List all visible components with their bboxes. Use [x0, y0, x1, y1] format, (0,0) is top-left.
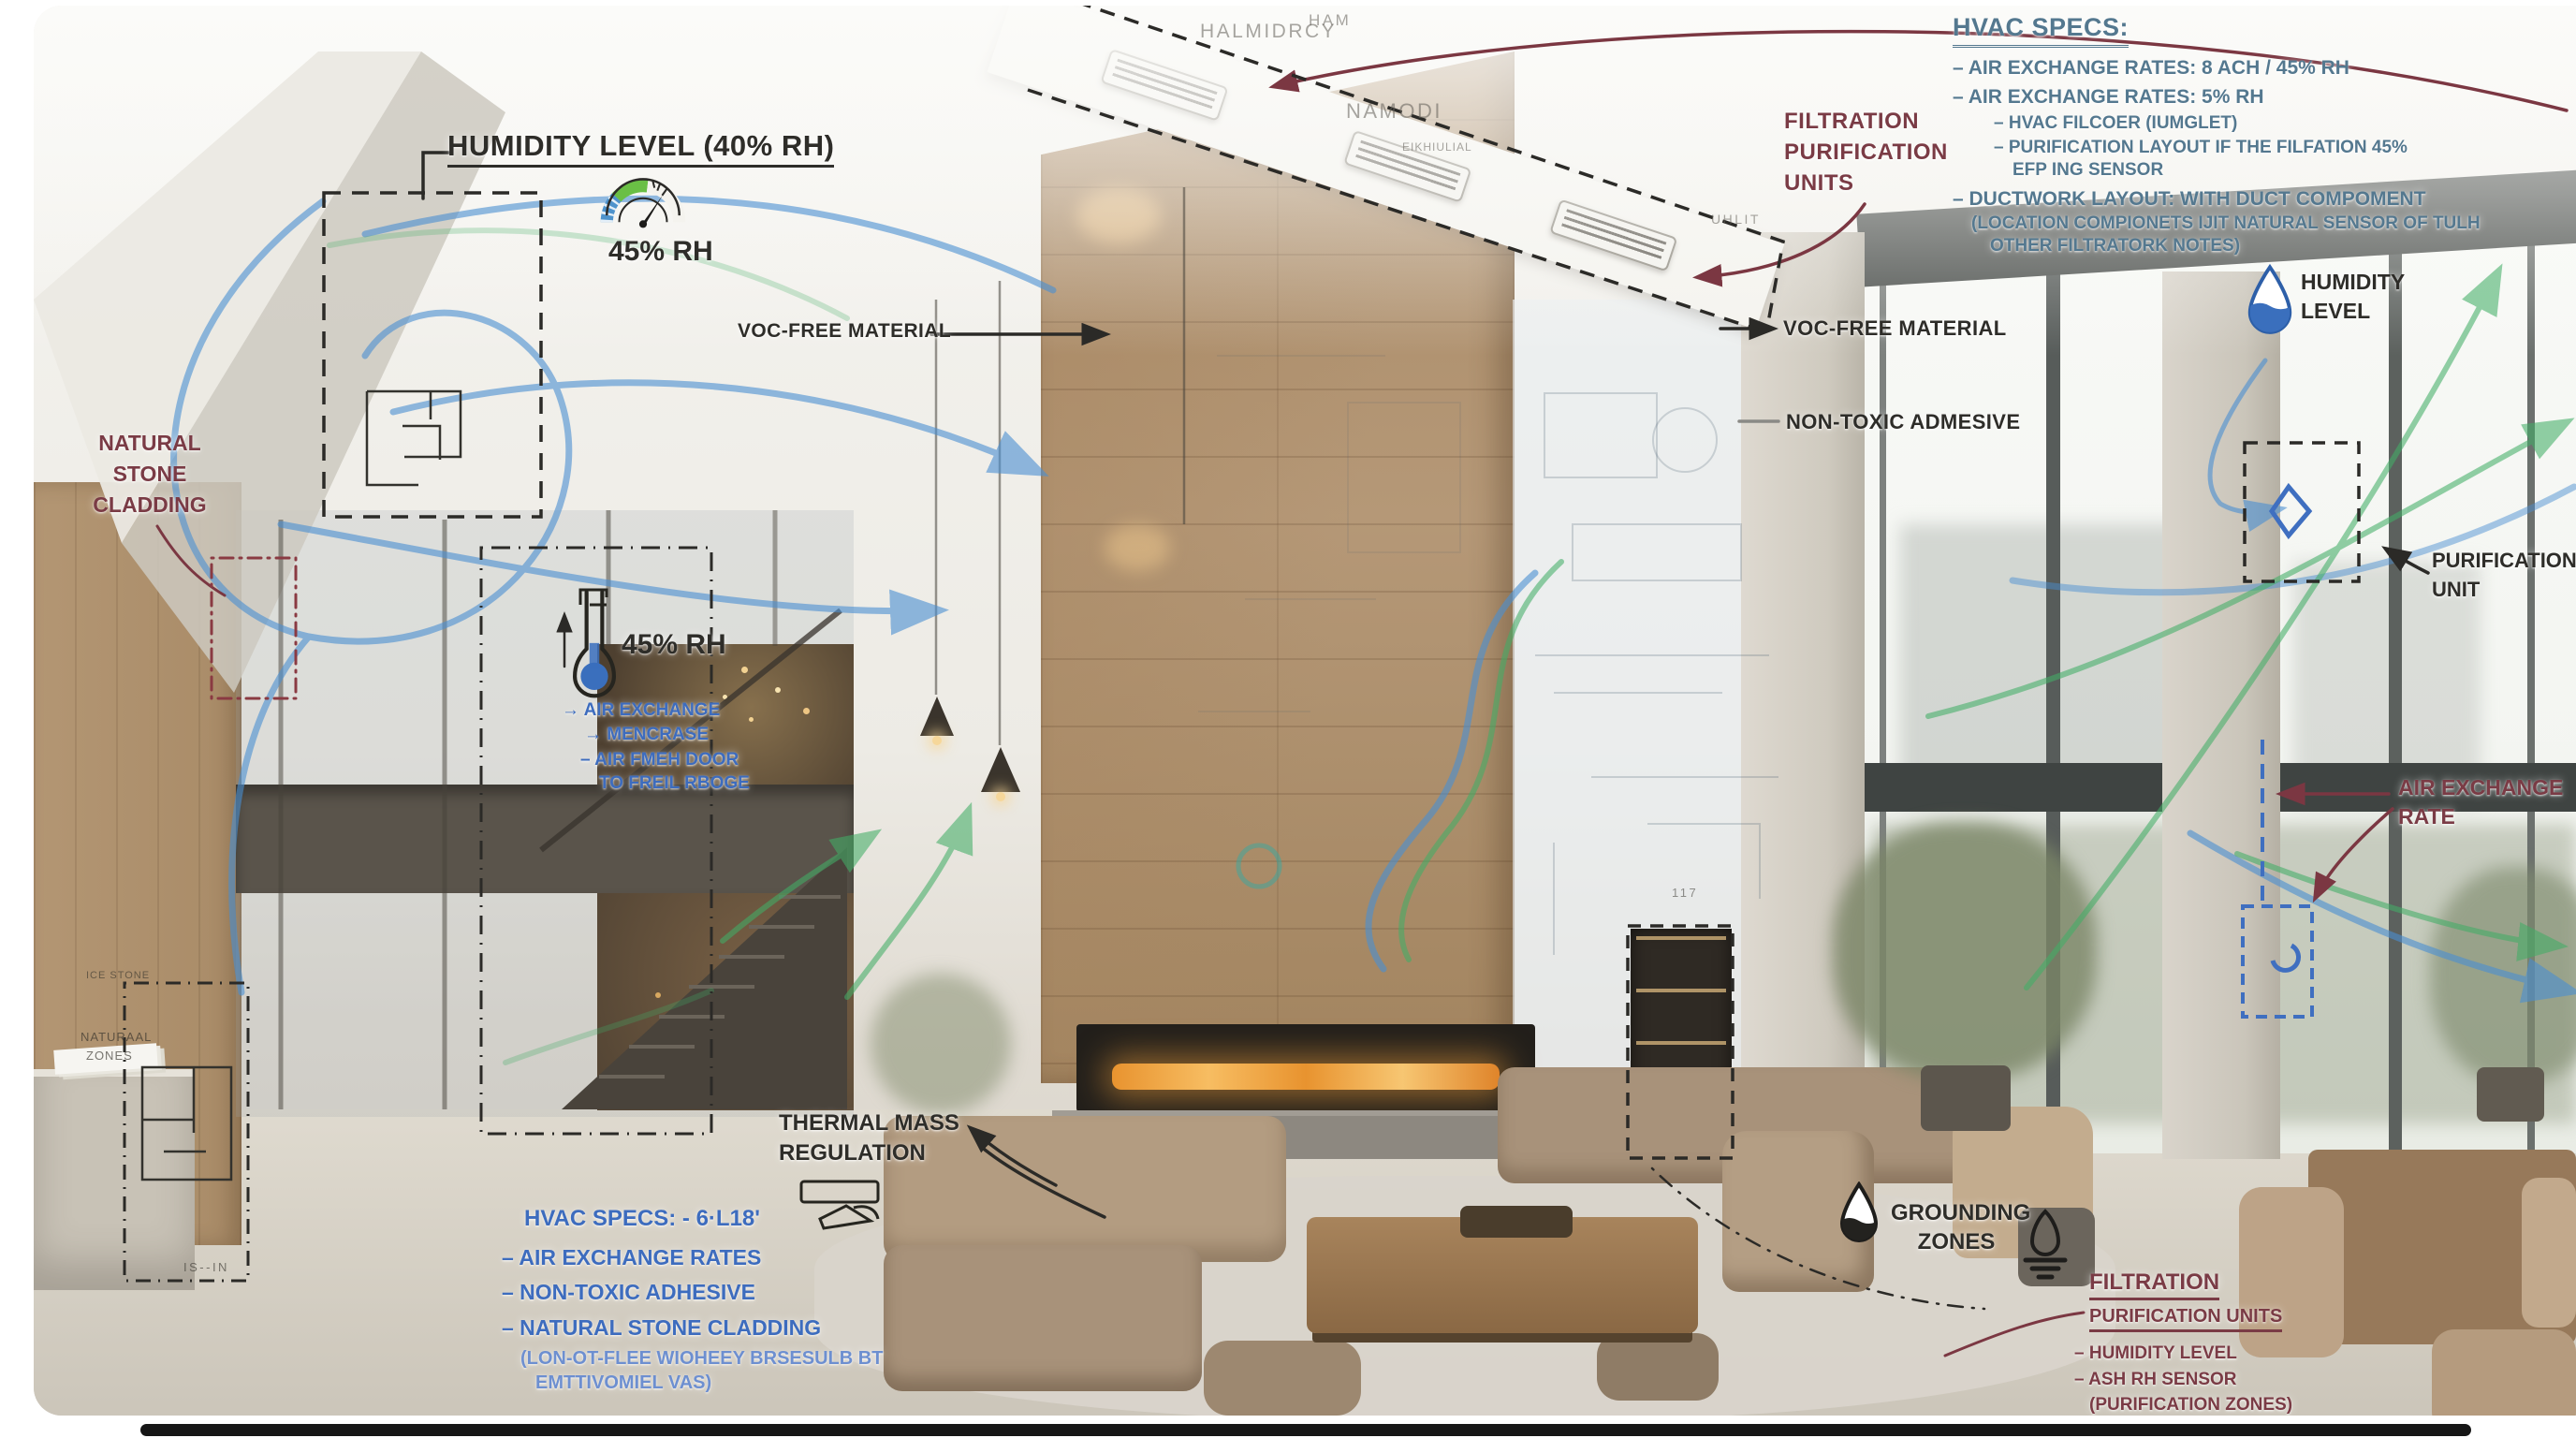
scene-dining-chair-2 — [2432, 1329, 2576, 1416]
scene-column-left — [1741, 232, 1865, 1170]
hvac-bottom-note-1: (LON-OT-FLEE WIOHEEY BRSESULB BT — [520, 1348, 883, 1370]
scene-reception-desk — [34, 1069, 195, 1290]
bottom-bar — [140, 1424, 2471, 1436]
grounding-zones-label: GROUNDING ZONES — [1891, 1200, 2022, 1255]
natural-stone-line3: CLADDING — [56, 492, 243, 518]
scene-flames — [1112, 1064, 1500, 1090]
hvac-bottom-item-1: – NON-TOXIC ADHESIVE — [502, 1280, 883, 1305]
flask-note-0: → AIR EXCHANGE — [562, 700, 750, 721]
rh-flask-notes: → AIR EXCHANGE → MENCRASE – AIR FMEH DOO… — [562, 700, 750, 794]
thermal-mass-line1: THERMAL MASS — [779, 1110, 959, 1137]
hvac-specs-top-title: HVAC SPECS: — [1953, 13, 2129, 48]
flask-note-3: TO FREIL RBOGE — [599, 773, 750, 794]
hvac-top-item-7: OTHER FILTRATORK NOTES) — [1990, 236, 2481, 257]
faint-text-naturaal: NATURAAL — [80, 1030, 152, 1044]
faint-text-ham: HAM — [1309, 11, 1351, 30]
hvac-top-item-4: EFP ING SENSOR — [2012, 160, 2481, 181]
humidity-gauge-value: 45% RH — [608, 236, 713, 268]
filtration-units-top: FILTRATION PURIFICATION UNITS — [1784, 109, 1948, 197]
filtration-bottom-title2: PURIFICATION UNITS — [2089, 1306, 2282, 1332]
faint-text-ice-stone: ICE STONE — [86, 970, 150, 981]
faint-text-eikh: EIKHIULIAL — [1402, 140, 1472, 154]
thermal-mass-line2: REGULATION — [779, 1140, 959, 1167]
faint-text-uhlit: UHLIT — [1711, 212, 1761, 227]
humidity-gauge — [593, 170, 693, 245]
scene-pouf — [1204, 1341, 1361, 1416]
filtration-bottom-title1: FILTRATION — [2089, 1269, 2219, 1300]
air-exchange-rate-line2: RATE — [2398, 804, 2563, 829]
flask-note-2: – AIR FMEH DOOR — [580, 750, 750, 770]
humidity-level-right: HUMIDITY LEVEL — [2301, 270, 2405, 324]
scene-plant-pot — [1921, 1065, 2011, 1131]
hvac-top-item-3: – PURIFICATION LAYOUT IF THE FILFATION 4… — [1994, 138, 2481, 158]
filtration-bottom-item-1: – ASH RH SENSOR — [2074, 1370, 2292, 1390]
scene-plant-pot-2 — [2477, 1067, 2544, 1122]
filtration-bottom-item-0: – HUMIDITY LEVEL — [2074, 1343, 2292, 1364]
scene-plant-foliage-2 — [2430, 867, 2576, 1084]
hvac-top-item-6: (LOCATION COMPIONETS IJIT NATURAL SENSOR… — [1971, 213, 2481, 234]
humidity-title-suffix: (40% RH) — [703, 129, 834, 162]
scene-mullion-3 — [2389, 213, 2402, 1150]
filtration-top-line1: FILTRATION — [1784, 109, 1948, 135]
filtration-top-line3: UNITS — [1784, 170, 1948, 197]
hvac-specs-top: HVAC SPECS: – AIR EXCHANGE RATES: 8 ACH … — [1953, 13, 2481, 257]
hvac-bottom-title: HVAC SPECS: - 6·L18' — [524, 1206, 883, 1232]
purification-unit-line1: PURIFICATION — [2432, 549, 2576, 573]
voc-free-material-left: VOC-FREE MATERIAL — [738, 320, 951, 343]
rh-flask-icon — [573, 586, 616, 706]
hvac-bottom-item-0: – AIR EXCHANGE RATES — [502, 1245, 883, 1270]
photo-card: HALMIDRCY HAM NAMODI EIKHIULIAL UHLIT 11… — [34, 6, 2576, 1416]
grounding-droplet-icon — [1835, 1181, 1883, 1251]
faint-text-zones: ZONES — [86, 1049, 133, 1063]
voc-free-material-right: VOC-FREE MATERIAL — [1783, 316, 2007, 341]
faint-text-is-in: IS--IN — [183, 1260, 229, 1274]
faint-text-namodi: NAMODI — [1346, 99, 1442, 124]
filtration-bottom-item-2: (PURIFICATION ZONES) — [2089, 1395, 2292, 1416]
faint-text-117: 117 — [1672, 886, 1698, 900]
hvac-top-item-0: – AIR EXCHANGE RATES: 8 ACH / 45% RH — [1953, 57, 2481, 80]
grounding-line1: GROUNDING — [1891, 1200, 2022, 1226]
vent-grille-3 — [1549, 198, 1677, 271]
scene-warm-room-lower — [597, 893, 854, 1110]
scene-chaise — [884, 1245, 1202, 1391]
humidity-right-line1: HUMIDITY — [2301, 270, 2405, 295]
rh-flask-value: 45% RH — [622, 629, 726, 661]
natural-stone-line2: STONE — [56, 462, 243, 487]
purification-unit-line2: UNIT — [2432, 578, 2576, 602]
concept-visualization: HALMIDRCY HAM NAMODI EIKHIULIAL UHLIT 11… — [0, 0, 2576, 1438]
humidity-title-text: HUMIDITY LEVEL — [447, 129, 695, 162]
hvac-top-item-5: – DUCTWORK LAYOUT: WITH DUCT COMPOMENT — [1953, 188, 2481, 211]
filtration-top-line2: PURIFICATION — [1784, 139, 1948, 166]
humidity-right-line2: LEVEL — [2301, 299, 2405, 324]
filtration-units-bottom: FILTRATION PURIFICATION UNITS – HUMIDITY… — [2074, 1269, 2292, 1416]
hvac-bottom-item-2: – NATURAL STONE CLADDING — [502, 1315, 883, 1341]
humidity-level-title: HUMIDITY LEVEL (40% RH) — [447, 129, 834, 168]
grounding-line2: ZONES — [1891, 1229, 2022, 1255]
vent-grille-1 — [1100, 49, 1228, 122]
air-exchange-rate-line1: AIR EXCHANGE — [2398, 775, 2563, 800]
grounding-symbol-icon — [2022, 1208, 2069, 1281]
scene-plant-small — [871, 974, 1011, 1114]
scene-table-tray — [1460, 1206, 1573, 1238]
flask-note-1: → MENCRASE — [584, 725, 750, 745]
hvac-top-item-2: – HVAC FILCOER (IUMGLET) — [1994, 113, 2481, 134]
thermal-mass-label: THERMAL MASS REGULATION — [779, 1110, 959, 1167]
hvac-specs-bottom: HVAC SPECS: - 6·L18' – AIR EXCHANGE RATE… — [502, 1206, 883, 1394]
scene-pouf-2 — [1597, 1333, 1719, 1401]
humidity-droplet-icon — [2243, 260, 2297, 345]
purification-unit-label: PURIFICATION UNIT — [2432, 549, 2576, 602]
air-exchange-rate-label: AIR EXCHANGE RATE — [2398, 775, 2563, 829]
non-toxic-adhesive-label: NON-TOXIC ADMESIVE — [1786, 410, 2020, 434]
scene-dining-chair-3 — [2522, 1178, 2576, 1328]
hvac-bottom-note-2: EMTTIVOMIEL VAS) — [535, 1372, 883, 1394]
hvac-top-item-1: – AIR EXCHANGE RATES: 5% RH — [1953, 86, 2481, 109]
scene-column-right — [2162, 271, 2280, 1159]
natural-stone-cladding-label: NATURAL STONE CLADDING — [56, 431, 243, 518]
scene-mezzanine — [236, 785, 854, 893]
scene-plant-foliage — [1833, 822, 2097, 1080]
natural-stone-line1: NATURAL — [56, 431, 243, 456]
